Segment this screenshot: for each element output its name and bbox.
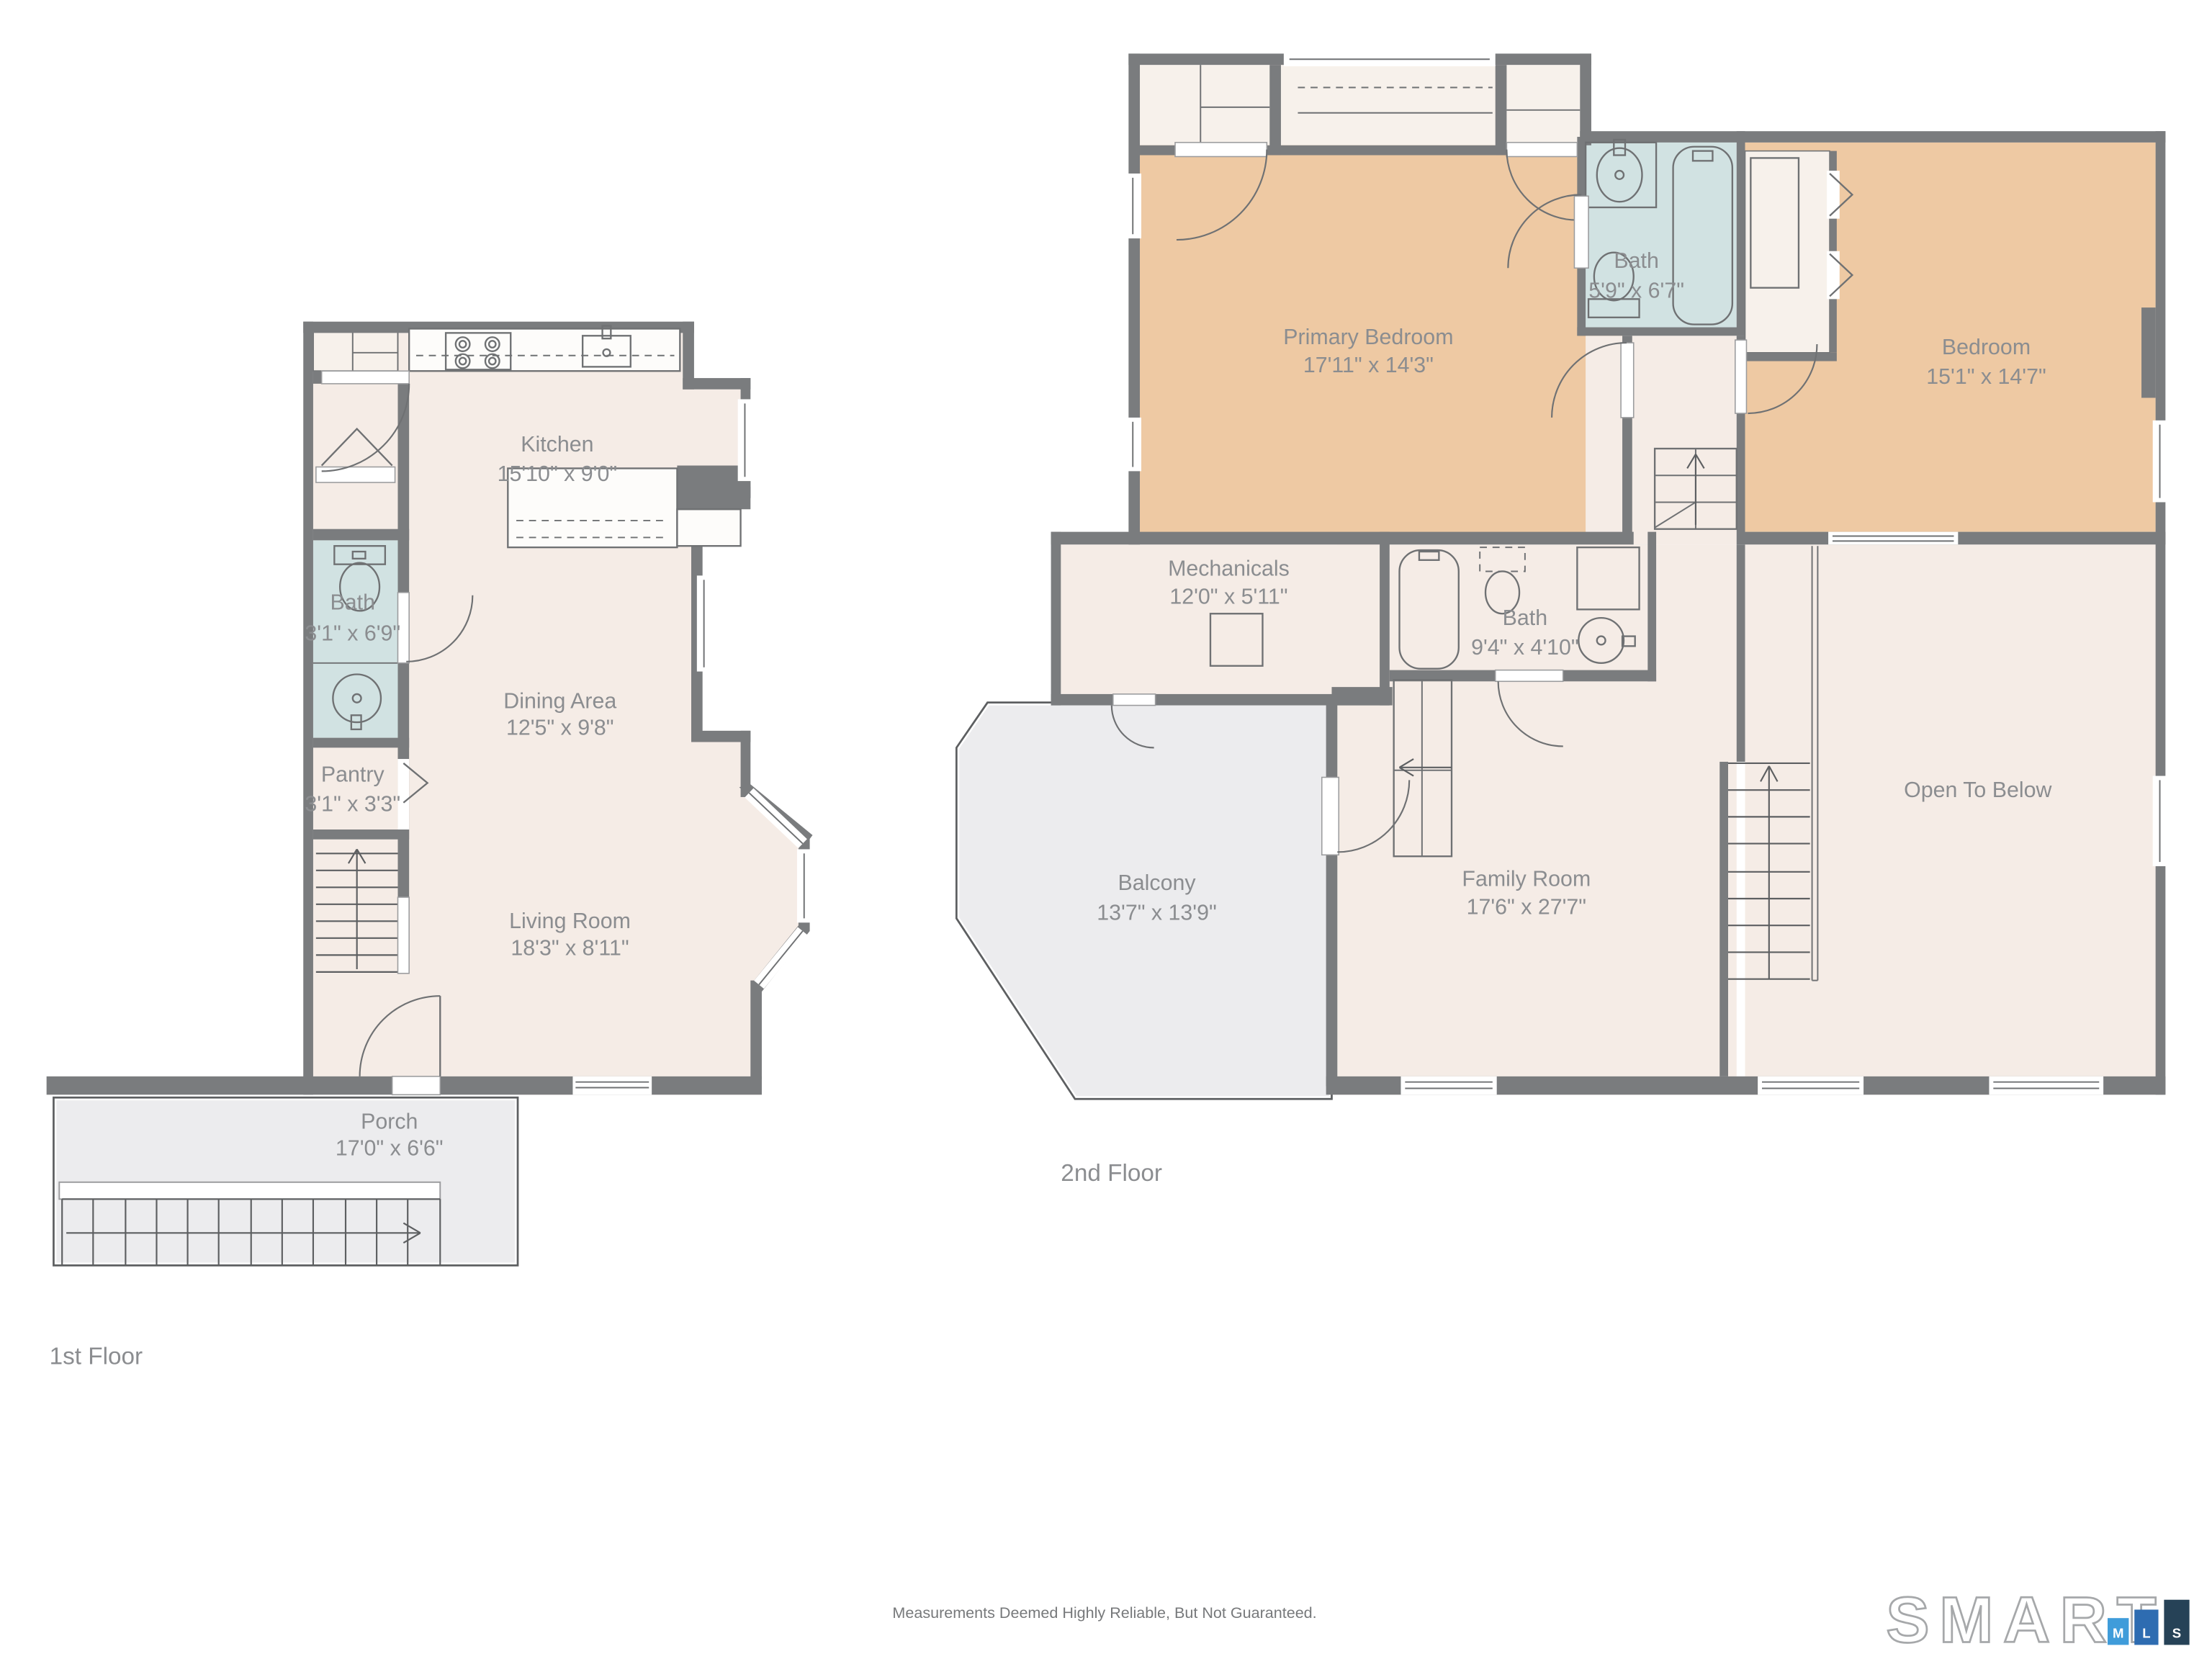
logo-letter-m: M — [2113, 1626, 2124, 1641]
room-label: Primary Bedroom — [1283, 325, 1453, 349]
room-dims: 17'11" x 14'3" — [1303, 354, 1434, 377]
room-label: Bath — [331, 590, 375, 614]
room-label: Bath — [1614, 249, 1658, 273]
room-dims: 5'9" x 6'7" — [1588, 279, 1684, 302]
room-label: Balcony — [1118, 871, 1197, 895]
room-label: Mechanicals — [1168, 557, 1290, 580]
room-dims: 17'6" x 27'7" — [1467, 896, 1587, 920]
porch — [53, 1097, 518, 1265]
room-dims: 12'0" x 5'11" — [1169, 585, 1287, 609]
floor-title: 1st Floor — [50, 1344, 143, 1370]
room-label: Open To Below — [1904, 778, 2051, 802]
disclaimer-text: Measurements Deemed Highly Reliable, But… — [892, 1604, 1316, 1622]
room-dims: 15'1" x 14'7" — [1926, 365, 2046, 389]
first-floor-plan: Kitchen 15'10" x 9'0" Bath 3'1" x 6'9" D… — [47, 322, 813, 1370]
floor-plan-page: Kitchen 15'10" x 9'0" Bath 3'1" x 6'9" D… — [0, 0, 2212, 1659]
kitchen-closet — [313, 331, 398, 371]
room-dims: 18'3" x 8'11" — [511, 936, 629, 960]
room-dims: 13'7" x 13'9" — [1097, 901, 1217, 925]
room-label: Bedroom — [1942, 336, 2031, 359]
room-label: Porch — [361, 1110, 418, 1133]
room-label: Dining Area — [503, 690, 616, 714]
room-dims: 17'0" x 6'6" — [336, 1137, 444, 1161]
porch-ledge — [59, 1182, 440, 1200]
room-dims: 3'1" x 3'3" — [305, 793, 400, 817]
floor-plan-canvas: Kitchen 15'10" x 9'0" Bath 3'1" x 6'9" D… — [0, 0, 2212, 1659]
side-counter — [677, 509, 740, 546]
floor-title: 2nd Floor — [1061, 1160, 1162, 1187]
open-to-below-floor — [1745, 544, 2156, 1076]
logo-letter-s: S — [2172, 1626, 2181, 1641]
kitchen-counter — [409, 328, 680, 371]
room-label: Bath — [1503, 606, 1547, 630]
bedroom-closet — [1745, 151, 1830, 353]
room-dims: 15'10" x 9'0" — [498, 462, 618, 486]
smartmls-logo: SMART M L S — [1886, 1583, 2189, 1656]
room-label: Living Room — [509, 909, 631, 933]
room-label: Family Room — [1462, 867, 1591, 891]
room-dims: 12'5" x 9'8" — [506, 716, 614, 740]
room-label: Pantry — [321, 763, 385, 786]
hallway-floor — [1586, 336, 1737, 544]
logo-letter-l: L — [2142, 1626, 2150, 1641]
room-dims: 9'4" x 4'10" — [1471, 636, 1579, 660]
second-floor-plan: Primary Bedroom 17'11" x 14'3" Bath 5'9"… — [956, 52, 2167, 1186]
footer: Measurements Deemed Highly Reliable, But… — [892, 1583, 2189, 1656]
room-label: Kitchen — [521, 433, 593, 457]
room-dims: 3'1" x 6'9" — [305, 621, 400, 645]
primary-closets — [1140, 65, 1580, 145]
